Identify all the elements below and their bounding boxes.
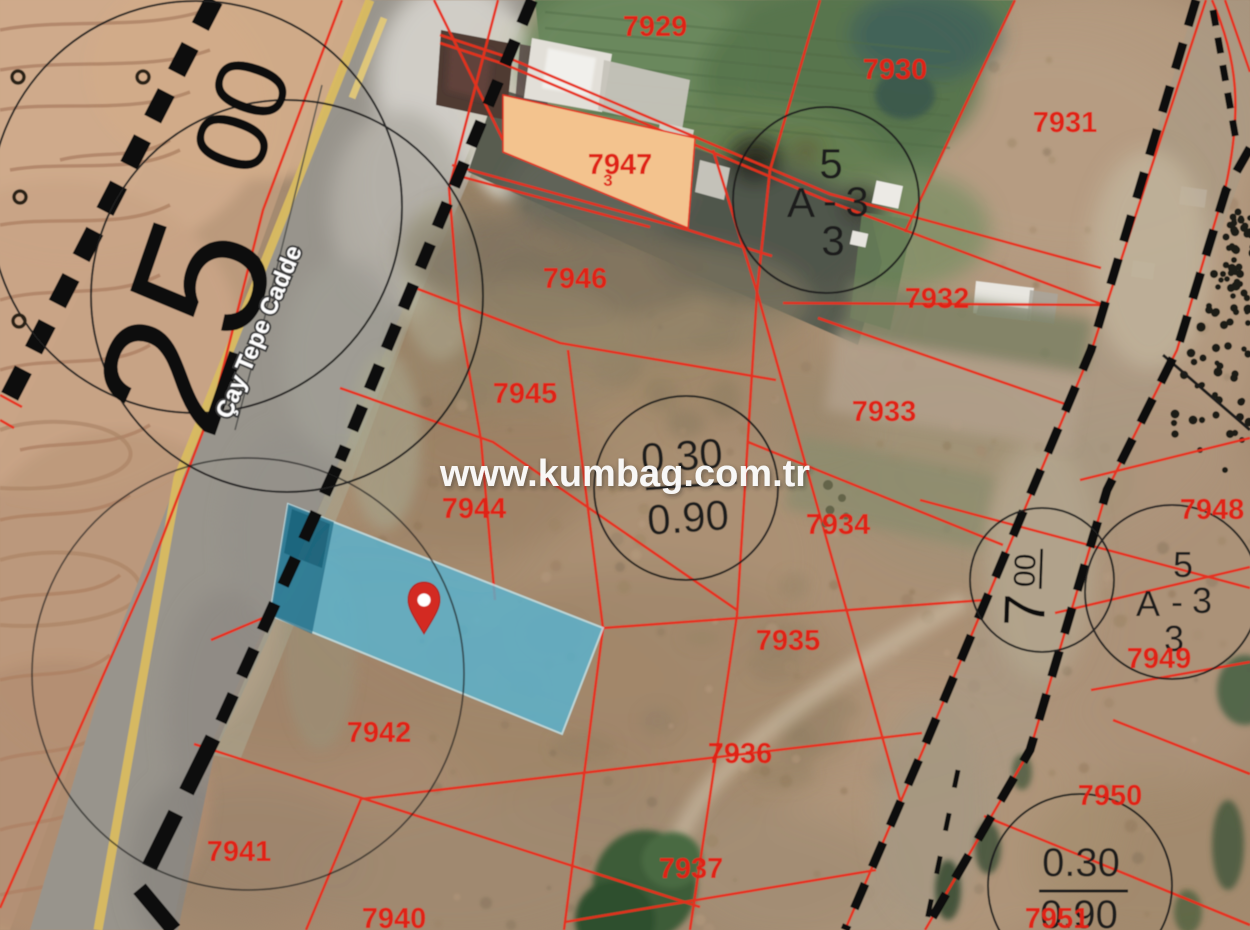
svg-text:7932: 7932 [905, 283, 970, 315]
svg-text:3: 3 [603, 171, 612, 190]
svg-text:-: - [1171, 581, 1183, 622]
svg-text:7946: 7946 [543, 263, 608, 295]
svg-text:7937: 7937 [659, 853, 724, 885]
svg-text:3: 3 [821, 217, 844, 264]
svg-text:7947: 7947 [588, 149, 653, 181]
svg-text:5: 5 [1173, 544, 1193, 585]
svg-text:7949: 7949 [1127, 643, 1192, 675]
svg-text:A: A [787, 179, 815, 226]
svg-text:7940: 7940 [362, 903, 427, 930]
svg-text:7941: 7941 [207, 836, 272, 868]
svg-text:7934: 7934 [806, 509, 871, 541]
svg-text:7935: 7935 [756, 625, 821, 657]
svg-text:7948: 7948 [1180, 494, 1245, 526]
svg-text:7950: 7950 [1078, 780, 1143, 812]
svg-text:7944: 7944 [442, 493, 507, 525]
svg-text:7942: 7942 [347, 717, 412, 749]
svg-text:7931: 7931 [1033, 107, 1098, 139]
svg-text:7936: 7936 [708, 738, 773, 770]
svg-text:0.30: 0.30 [1042, 841, 1120, 885]
svg-text:0.90: 0.90 [646, 491, 731, 544]
svg-text:www.kumbag.com.tr: www.kumbag.com.tr [439, 453, 810, 495]
svg-text:7933: 7933 [852, 396, 917, 428]
svg-text:7951: 7951 [1025, 903, 1090, 930]
svg-text:7945: 7945 [493, 378, 558, 410]
svg-text:7930: 7930 [863, 54, 928, 86]
svg-text:3: 3 [845, 178, 868, 225]
svg-text:3: 3 [1192, 580, 1212, 621]
svg-text:7929: 7929 [623, 11, 688, 43]
svg-text:A: A [1136, 583, 1160, 624]
